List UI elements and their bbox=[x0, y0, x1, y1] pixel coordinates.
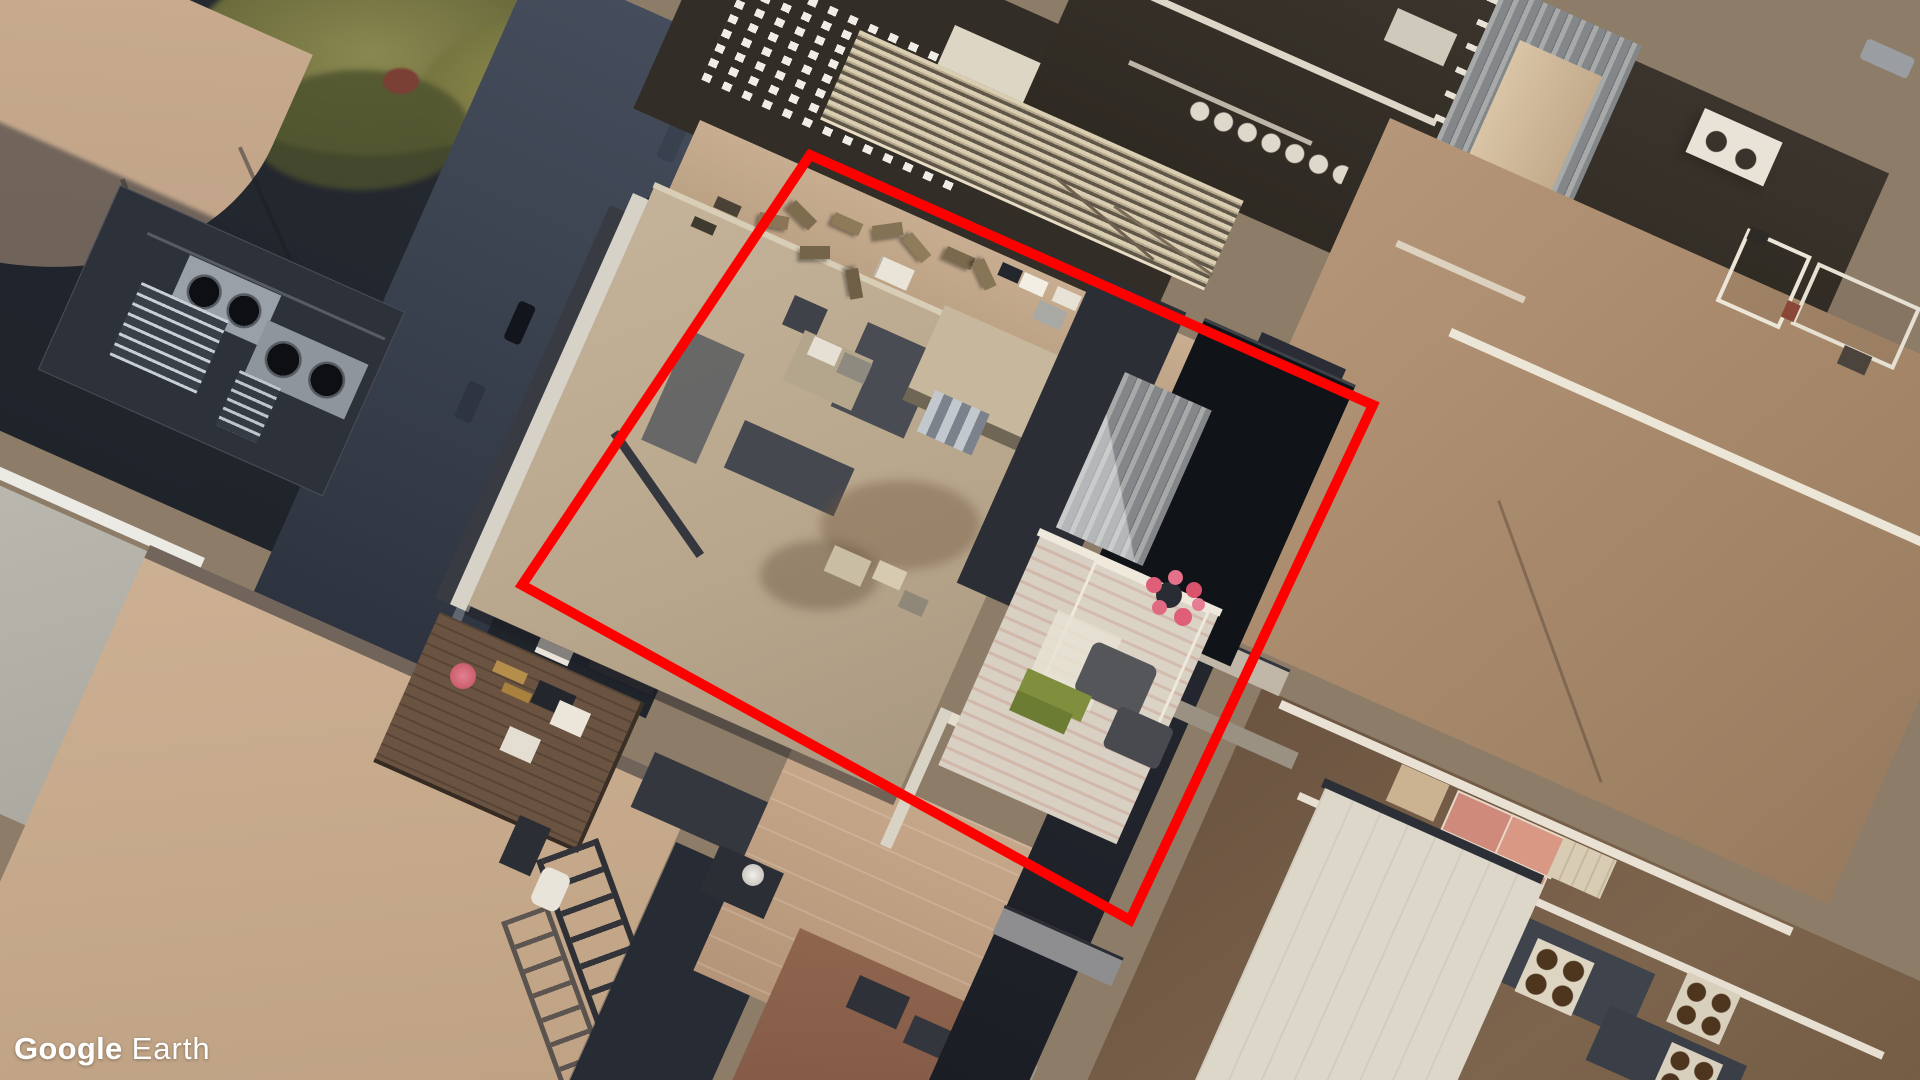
dome-vent bbox=[742, 864, 764, 886]
terrace-chair-pink-1 bbox=[1146, 577, 1162, 593]
terrace-chair-pink-6 bbox=[1192, 598, 1205, 611]
deck-umbrella-pink bbox=[450, 663, 476, 689]
terrace-chair-pink-4 bbox=[1152, 600, 1167, 615]
terrace-chair-pink-5 bbox=[1174, 608, 1192, 626]
terrace-chair-pink-2 bbox=[1168, 570, 1183, 585]
lounge-chair-9 bbox=[800, 246, 830, 259]
watermark: GoogleEarth bbox=[14, 1033, 211, 1064]
van-ne bbox=[1859, 38, 1915, 79]
watermark-brand: Google bbox=[14, 1031, 123, 1066]
earth-3d-view[interactable]: GoogleEarth bbox=[0, 0, 1920, 1080]
shrub-red bbox=[383, 68, 419, 94]
terrace-chair-pink-3 bbox=[1186, 582, 1202, 598]
watermark-product: Earth bbox=[132, 1031, 211, 1066]
